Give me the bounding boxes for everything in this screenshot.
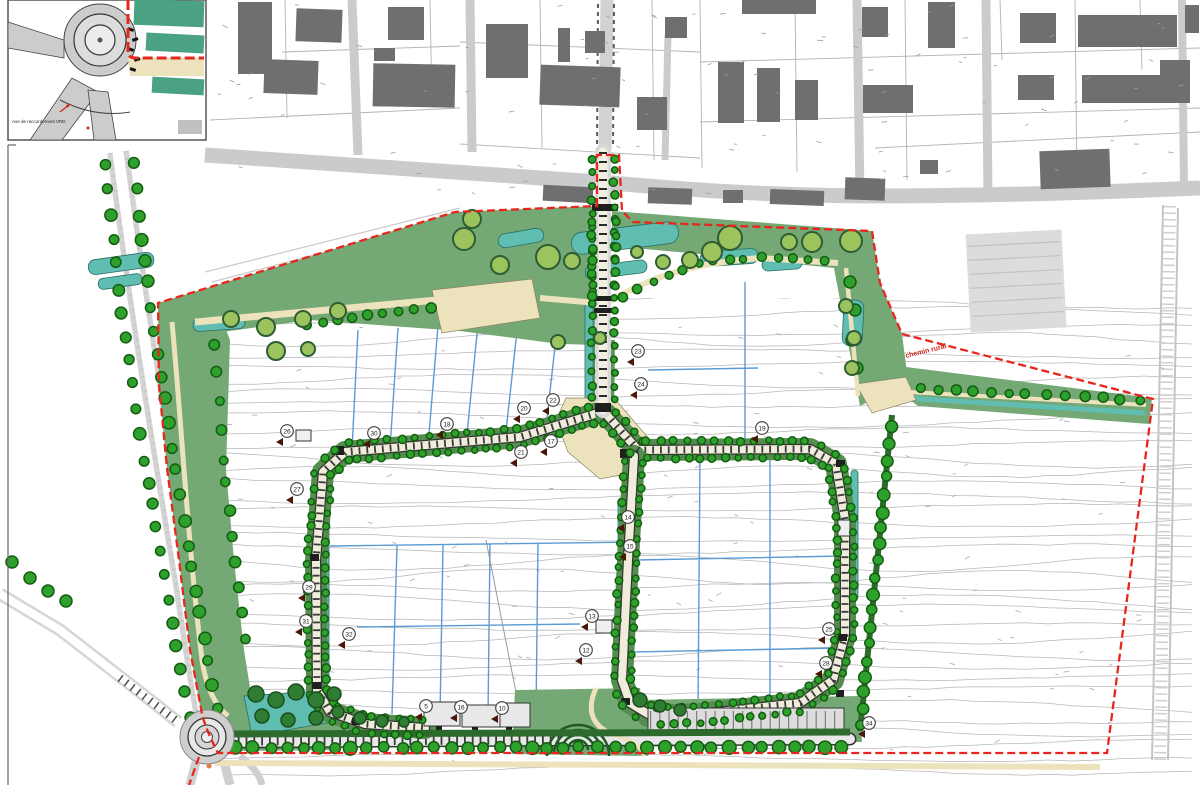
tree [227, 532, 237, 542]
tree [829, 498, 836, 505]
marker-label: 27 [293, 486, 301, 493]
tree [729, 699, 736, 706]
tree [831, 574, 839, 582]
tree [321, 538, 329, 546]
tree [353, 727, 360, 734]
tree [451, 429, 459, 437]
tree [304, 663, 312, 671]
tree [842, 658, 850, 666]
tree [843, 476, 851, 484]
tree [572, 406, 580, 414]
building [1185, 5, 1199, 33]
tree [718, 226, 742, 250]
tree [675, 741, 686, 752]
tree [308, 512, 316, 520]
tree [295, 311, 311, 327]
tree [433, 449, 441, 457]
tree [736, 714, 744, 722]
tree [839, 299, 853, 313]
tree [588, 368, 595, 375]
tree [590, 211, 596, 217]
tree [831, 636, 838, 643]
tree [615, 601, 621, 607]
tree [876, 507, 889, 520]
tree [765, 695, 772, 702]
tree [832, 451, 840, 459]
tree [491, 256, 509, 274]
tree [833, 536, 841, 544]
tree [849, 594, 857, 602]
tree [381, 731, 388, 738]
tree [589, 312, 596, 319]
tree [321, 564, 329, 572]
tree [611, 384, 617, 390]
tree [612, 409, 619, 416]
tree [759, 454, 766, 461]
tree [113, 285, 125, 297]
tree [759, 712, 766, 719]
tree [735, 455, 741, 461]
tree [829, 686, 837, 694]
tree [828, 648, 835, 655]
tree [625, 742, 636, 753]
tree [617, 439, 625, 447]
tree [702, 702, 708, 708]
tree [622, 458, 628, 464]
tree [609, 178, 617, 186]
tree [363, 310, 373, 320]
tree [800, 437, 808, 445]
marker-label: 29 [305, 584, 313, 591]
tree [322, 675, 330, 683]
tree [858, 703, 869, 714]
tree [482, 445, 489, 452]
building [863, 85, 913, 113]
tree [612, 396, 618, 402]
tree [612, 658, 619, 665]
tree [131, 404, 141, 414]
tree [347, 706, 353, 712]
tree [588, 256, 597, 265]
tree [612, 167, 618, 173]
tree [659, 741, 672, 754]
tree [916, 384, 925, 393]
tree [353, 455, 361, 463]
tree [506, 444, 512, 450]
tree [348, 313, 357, 322]
marker-label: 22 [549, 397, 557, 404]
tree [321, 454, 329, 462]
tree [697, 437, 705, 445]
tree [628, 637, 635, 644]
tree [365, 455, 372, 462]
tree [174, 489, 185, 500]
tree [849, 514, 857, 522]
marker-label: 34 [865, 720, 873, 727]
tree [132, 183, 143, 194]
tree [630, 624, 637, 631]
tree [391, 731, 398, 738]
tree [536, 245, 560, 269]
tree [821, 694, 828, 701]
tree [630, 599, 638, 607]
tree [834, 549, 842, 557]
tree [357, 440, 363, 446]
tree [684, 437, 691, 444]
building [1078, 15, 1177, 47]
tree [809, 701, 815, 707]
tree [100, 160, 110, 170]
tree [589, 245, 597, 253]
marker-label: 30 [370, 430, 378, 437]
marker-label: 32 [345, 631, 353, 638]
tree [134, 428, 146, 440]
tree [656, 255, 670, 269]
tree [42, 585, 54, 597]
tree [587, 231, 596, 240]
tree [592, 741, 604, 753]
tree [825, 464, 832, 471]
tree [628, 651, 635, 658]
tree [612, 307, 619, 314]
tree [190, 585, 202, 597]
tree [619, 473, 627, 481]
tree [376, 715, 388, 727]
tree [102, 184, 112, 194]
marker-label: 18 [443, 421, 451, 428]
building [757, 68, 780, 122]
tree [636, 509, 643, 516]
tree [322, 589, 329, 596]
tree [613, 232, 620, 239]
tree [321, 603, 328, 610]
tree [549, 415, 555, 421]
tree [802, 232, 822, 252]
tree [987, 388, 997, 398]
tree [368, 713, 376, 721]
tree [304, 535, 312, 543]
tree [579, 422, 586, 429]
tree [308, 499, 314, 505]
tree [739, 256, 746, 263]
tree [611, 356, 618, 363]
tree [1060, 391, 1069, 400]
tree [840, 230, 862, 252]
tree [458, 447, 465, 454]
tree [323, 523, 330, 530]
tree [327, 497, 334, 504]
tree [330, 303, 346, 319]
tree [881, 455, 893, 467]
tree [209, 340, 219, 350]
tree [237, 607, 247, 617]
tree [736, 438, 744, 446]
building [770, 189, 824, 206]
tree [223, 311, 239, 327]
tree [870, 573, 880, 583]
tree [551, 335, 565, 349]
building [1160, 60, 1190, 103]
tree [219, 456, 228, 465]
tree [445, 449, 452, 456]
marker-label: 15 [626, 543, 634, 550]
tree [657, 455, 663, 461]
tree [783, 708, 791, 716]
tree [632, 714, 639, 721]
tree [631, 246, 643, 258]
tree [615, 577, 622, 584]
tree [636, 496, 643, 503]
tree [150, 521, 160, 531]
tree [536, 419, 544, 427]
building [862, 7, 888, 37]
tree [139, 255, 151, 267]
tree [788, 254, 797, 263]
tree [612, 257, 619, 264]
tree [867, 605, 877, 615]
tree [411, 741, 423, 753]
marker-label: 28 [822, 660, 830, 667]
tree [1098, 392, 1108, 402]
tree [588, 218, 596, 226]
tree [308, 692, 324, 708]
tree [493, 445, 500, 452]
tree [845, 361, 859, 375]
tree [874, 538, 886, 550]
tree [825, 670, 832, 677]
tree [620, 486, 626, 492]
tree [766, 437, 772, 443]
tree [399, 717, 409, 727]
tree [756, 741, 767, 752]
tree [115, 307, 127, 319]
tree [323, 551, 330, 558]
tree [612, 243, 621, 252]
tree [303, 561, 310, 568]
tree [833, 560, 840, 567]
tree [383, 436, 390, 443]
tree [211, 366, 222, 377]
tree [739, 698, 746, 705]
tree [877, 489, 889, 501]
tree [394, 307, 403, 316]
roundabout-marker-dot [207, 764, 212, 769]
marker-label: 10 [498, 705, 506, 712]
tree [635, 520, 642, 527]
building [1018, 75, 1054, 100]
tree [665, 271, 673, 279]
tree [426, 433, 432, 439]
tree [611, 295, 617, 301]
tree [633, 693, 647, 707]
tree [304, 573, 312, 581]
tree [594, 332, 606, 344]
tree [849, 567, 857, 575]
tree [170, 640, 182, 652]
tree [751, 696, 759, 704]
tree [1020, 389, 1029, 398]
building [486, 24, 528, 78]
marker-label: 20 [520, 405, 528, 412]
tree [834, 614, 840, 620]
tree [674, 704, 686, 716]
tree [321, 653, 328, 660]
tree [612, 204, 618, 210]
building [558, 28, 570, 62]
tree [216, 425, 226, 435]
tree [775, 254, 783, 262]
tree [618, 499, 626, 507]
tree [305, 640, 311, 646]
tree [164, 595, 173, 604]
tree [862, 657, 872, 667]
tree [193, 605, 206, 618]
tree [698, 720, 704, 726]
tree [299, 743, 309, 753]
tree [691, 741, 704, 754]
tree [526, 421, 533, 428]
tree [818, 442, 825, 449]
tree [615, 564, 621, 570]
tree [632, 284, 641, 293]
marker-label: 23 [634, 348, 642, 355]
tree [281, 713, 295, 727]
tree [160, 570, 169, 579]
building [1039, 149, 1110, 189]
tree [1042, 390, 1051, 399]
tree [883, 438, 895, 450]
tree [609, 429, 617, 437]
tree [142, 275, 154, 287]
tree [453, 228, 475, 250]
tree [633, 560, 639, 566]
tree [568, 426, 575, 433]
tree [639, 460, 646, 467]
tree [850, 553, 857, 560]
tree [796, 709, 803, 716]
tree [326, 471, 334, 479]
tree [393, 453, 399, 459]
tree [833, 524, 840, 531]
tree [267, 342, 285, 360]
tree [377, 454, 385, 462]
tree [742, 741, 754, 753]
tree [835, 741, 848, 754]
tree [618, 293, 627, 302]
tree [584, 403, 592, 411]
tree [329, 719, 335, 725]
tree [789, 741, 801, 753]
tree [255, 709, 269, 723]
tree [170, 464, 180, 474]
tree [144, 478, 155, 489]
tree [774, 454, 780, 460]
tree [139, 456, 149, 466]
tree [873, 555, 883, 565]
tree [631, 428, 638, 435]
tree [611, 629, 619, 637]
tree [611, 268, 620, 277]
building [263, 59, 318, 95]
tree [105, 209, 117, 221]
tree [419, 450, 427, 458]
tree [702, 242, 722, 262]
tree [1080, 391, 1090, 401]
tree [747, 454, 754, 461]
tree [705, 742, 716, 753]
marker-label: 19 [758, 425, 766, 432]
tree [777, 693, 783, 699]
tree [327, 486, 334, 493]
tree [669, 437, 677, 445]
tree [865, 638, 874, 647]
tree [610, 317, 618, 325]
tree [590, 420, 598, 428]
tree [710, 437, 718, 445]
tree [850, 529, 857, 536]
tree [613, 690, 621, 698]
tree [179, 686, 190, 697]
tree [686, 454, 694, 462]
tree [617, 540, 623, 546]
tree [612, 283, 619, 290]
tree [149, 326, 159, 336]
tree [851, 543, 858, 550]
marker-label: 25 [825, 626, 833, 633]
tree [246, 741, 259, 754]
building [1020, 13, 1056, 43]
tree [167, 617, 179, 629]
tree [657, 437, 665, 445]
tree [639, 472, 645, 478]
tree [589, 169, 596, 176]
tree [128, 378, 138, 388]
tree [613, 590, 621, 598]
tree [788, 437, 796, 445]
tree [331, 446, 339, 454]
tree [622, 418, 630, 426]
tree [803, 740, 815, 752]
building [928, 2, 955, 48]
tree [199, 632, 211, 644]
tree [184, 541, 195, 552]
tree [611, 191, 619, 199]
tree [611, 672, 618, 679]
tree [864, 622, 876, 634]
tree [587, 270, 596, 279]
tree [934, 386, 943, 395]
tree [398, 435, 406, 443]
tree [833, 588, 839, 594]
building [920, 160, 938, 174]
tree [229, 556, 240, 567]
tree [589, 354, 596, 361]
tree [820, 256, 829, 265]
tree [476, 430, 482, 436]
building [295, 8, 342, 43]
tree [111, 257, 121, 267]
tree [726, 255, 735, 264]
tree [307, 522, 315, 530]
tree [841, 465, 848, 472]
tree [815, 676, 822, 683]
tree [875, 522, 886, 533]
tree [776, 438, 783, 445]
tree [124, 355, 134, 365]
tree [345, 456, 353, 464]
tree [120, 332, 131, 343]
tree [332, 706, 344, 718]
